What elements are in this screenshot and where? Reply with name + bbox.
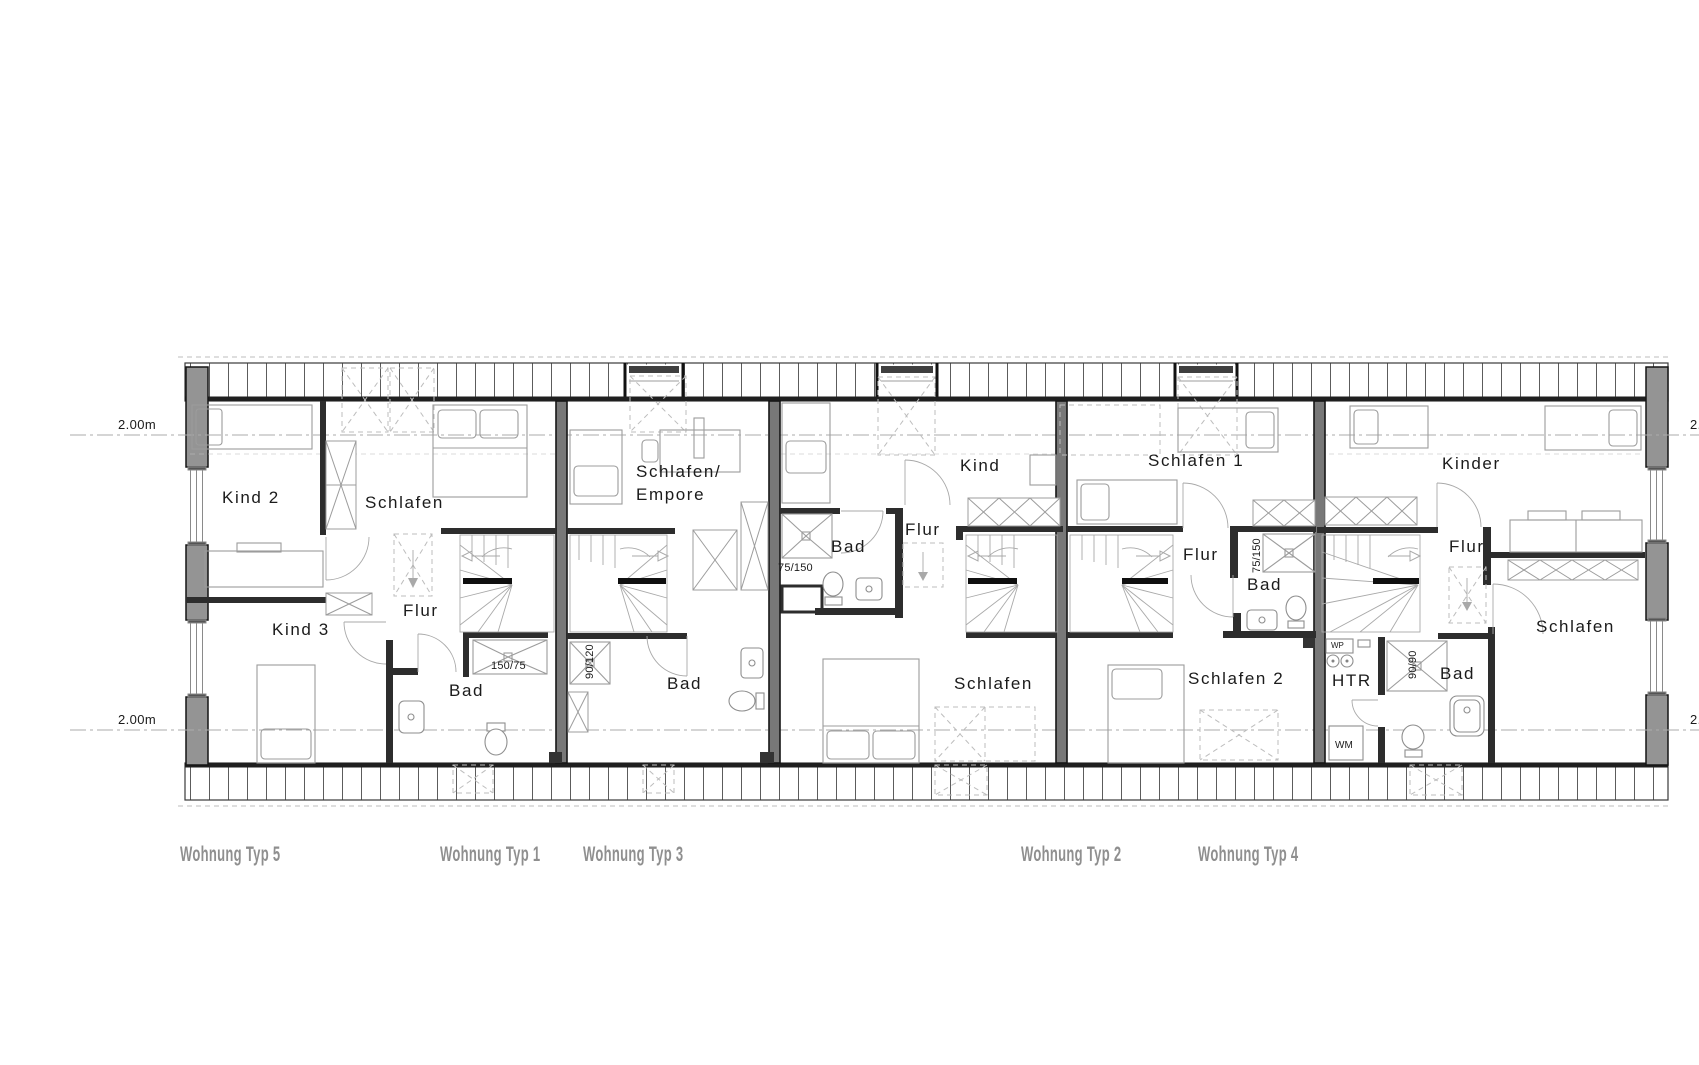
room-label-flur-typ3: Flur bbox=[905, 520, 941, 540]
roof-window-3 bbox=[1174, 363, 1239, 399]
room-label-bad-typ5: Bad bbox=[449, 681, 484, 701]
room-label-bad-typ2: Bad bbox=[1247, 575, 1282, 595]
storage-bad-typ1 bbox=[568, 692, 588, 732]
wardrobe-typ2 bbox=[1253, 500, 1315, 526]
room-label-kind-typ3: Kind bbox=[960, 456, 1000, 476]
unit-typ3 bbox=[780, 403, 1063, 763]
fixture-size-shower-typ1: 90/120 bbox=[584, 644, 596, 679]
roof-hatch-bottom bbox=[178, 763, 1670, 806]
fixture-size-shower-typ4: 90/90 bbox=[1407, 650, 1419, 679]
room-label-kinder-typ4: Kinder bbox=[1442, 454, 1501, 474]
room-label-schlafen2-typ2: Schlafen 2 bbox=[1188, 669, 1284, 689]
storage-typ1 bbox=[693, 502, 768, 590]
roof-window-2 bbox=[876, 363, 939, 399]
room-label-bad-typ4: Bad bbox=[1440, 664, 1475, 684]
bed-schlafen-typ3 bbox=[823, 659, 919, 763]
height-lines bbox=[70, 435, 1699, 730]
sink-typ5 bbox=[399, 701, 424, 733]
room-label-schlafen-typ3: Schlafen bbox=[954, 674, 1033, 694]
appliance-label-wp: WP bbox=[1331, 641, 1344, 650]
entrance-shaft-typ3 bbox=[903, 543, 943, 587]
bed-kind2 bbox=[192, 405, 312, 449]
desk-typ4 bbox=[1510, 511, 1642, 552]
stair-typ1 bbox=[570, 535, 668, 632]
entrance-shaft-typ4 bbox=[1449, 567, 1486, 623]
room-label-flur-typ5: Flur bbox=[403, 601, 439, 621]
roof-window-1 bbox=[624, 363, 685, 399]
apartment-title-typ2: Wohnung Typ 2 bbox=[1021, 843, 1121, 867]
stair-typ5 bbox=[460, 535, 554, 632]
room-label-schlafen-typ4: Schlafen bbox=[1536, 617, 1615, 637]
room-label-flur-typ4: Flur bbox=[1449, 537, 1485, 557]
exterior-wall-right bbox=[1646, 367, 1668, 765]
room-label-bad-typ3: Bad bbox=[831, 537, 866, 557]
fixture-size-shower-typ2: 75/150 bbox=[1251, 538, 1263, 573]
sink-typ2 bbox=[1247, 610, 1277, 630]
bed-schlafen2-typ2 bbox=[1108, 665, 1184, 763]
unit-typ5 bbox=[186, 401, 556, 763]
apartment-title-typ5: Wohnung Typ 5 bbox=[180, 843, 280, 867]
sink-typ1 bbox=[741, 648, 763, 678]
bed-typ1 bbox=[570, 430, 622, 504]
fixture-size-shower-typ5: 150/75 bbox=[491, 660, 526, 672]
apartment-title-typ1: Wohnung Typ 1 bbox=[440, 843, 540, 867]
appliance-label-wm: WM bbox=[1335, 740, 1353, 751]
floor-plan-canvas: 2.00m 2.00m 2.00m 2.00m Kind 2 Schlafen … bbox=[0, 0, 1699, 1065]
wardrobe-typ3 bbox=[968, 498, 1060, 526]
wardrobe-kinder bbox=[1325, 497, 1417, 525]
bed-kinder-left bbox=[1350, 406, 1428, 448]
desk-typ3 bbox=[1030, 455, 1056, 485]
window-right-2 bbox=[1648, 618, 1666, 695]
toilet-typ5 bbox=[485, 723, 507, 755]
room-label-flur-typ2: Flur bbox=[1183, 545, 1219, 565]
room-label-schlafen-empore: Schlafen/ Empore bbox=[636, 461, 721, 507]
toilet-typ4 bbox=[1402, 725, 1424, 757]
toilet-typ1 bbox=[729, 691, 764, 711]
sink-typ3 bbox=[856, 578, 882, 600]
apartment-title-typ3: Wohnung Typ 3 bbox=[583, 843, 683, 867]
room-label-schlafen1-typ2: Schlafen 1 bbox=[1148, 451, 1244, 471]
dashed-storage-typ3 bbox=[935, 707, 1035, 761]
dashed-storage-typ2 bbox=[1200, 710, 1278, 760]
entrance-shaft-typ5 bbox=[394, 534, 432, 596]
stair-typ4 bbox=[1322, 535, 1420, 632]
bathtub-typ4 bbox=[1450, 696, 1484, 736]
room-label-bad-typ1: Bad bbox=[667, 674, 702, 694]
bed-nook-typ3 bbox=[782, 403, 830, 503]
roof-hatch-top bbox=[178, 357, 1670, 401]
toilet-typ2 bbox=[1286, 596, 1306, 628]
dim-right-top: 2.00m bbox=[1690, 417, 1699, 432]
bed-top-typ2 bbox=[1178, 408, 1278, 452]
stair-typ3 bbox=[966, 535, 1057, 632]
window-left-2 bbox=[188, 620, 206, 697]
bed-kinder-right bbox=[1545, 406, 1641, 450]
wardrobe-typ5 bbox=[326, 441, 372, 615]
room-label-kind2: Kind 2 bbox=[222, 488, 280, 508]
floor-plan-drawing bbox=[0, 0, 1699, 1065]
dim-left-bottom: 2.00m bbox=[118, 712, 156, 727]
window-right-1 bbox=[1648, 467, 1666, 543]
stair-typ2 bbox=[1070, 535, 1173, 632]
bed-kind3 bbox=[257, 665, 315, 763]
room-label-kind3: Kind 3 bbox=[272, 620, 330, 640]
doors-typ1 bbox=[647, 636, 687, 676]
dim-right-bottom: 2.00m bbox=[1690, 712, 1699, 727]
toilet-typ3 bbox=[823, 572, 843, 605]
desk-kind2 bbox=[205, 543, 323, 587]
room-label-htr-typ4: HTR bbox=[1332, 671, 1372, 691]
bed-low-typ2 bbox=[1077, 480, 1177, 524]
dim-left-top: 2.00m bbox=[118, 417, 156, 432]
apartment-title-typ4: Wohnung Typ 4 bbox=[1198, 843, 1298, 867]
bed-schlafen-typ5 bbox=[433, 405, 527, 497]
wardrobe-schlafen-typ4 bbox=[1508, 560, 1638, 580]
window-left-1 bbox=[188, 467, 206, 545]
room-label-schlafen-typ5: Schlafen bbox=[365, 493, 444, 513]
fixture-size-shower-typ3: 75/150 bbox=[778, 562, 813, 574]
shower-typ2 bbox=[1263, 534, 1315, 572]
